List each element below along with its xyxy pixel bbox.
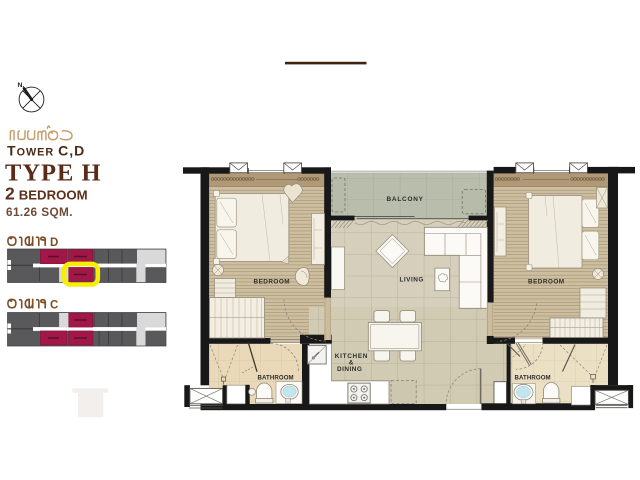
svg-text:BATHROOM: BATHROOM [258,374,294,381]
svg-text:LIVING: LIVING [400,276,424,283]
svg-text:C: C [50,299,58,311]
svg-text:BALCONY: BALCONY [387,196,424,203]
svg-text:BEDROOM: BEDROOM [254,278,291,285]
svg-text:TYPE H: TYPE H [5,160,102,187]
svg-text:N.: N. [18,82,25,89]
svg-text:BATHROOM: BATHROOM [515,374,551,381]
svg-text:BEDROOM: BEDROOM [528,278,565,285]
svg-text:DINING: DINING [337,366,362,373]
svg-text:D: D [50,237,58,249]
svg-text:61.26 SQM.: 61.26 SQM. [6,205,73,219]
